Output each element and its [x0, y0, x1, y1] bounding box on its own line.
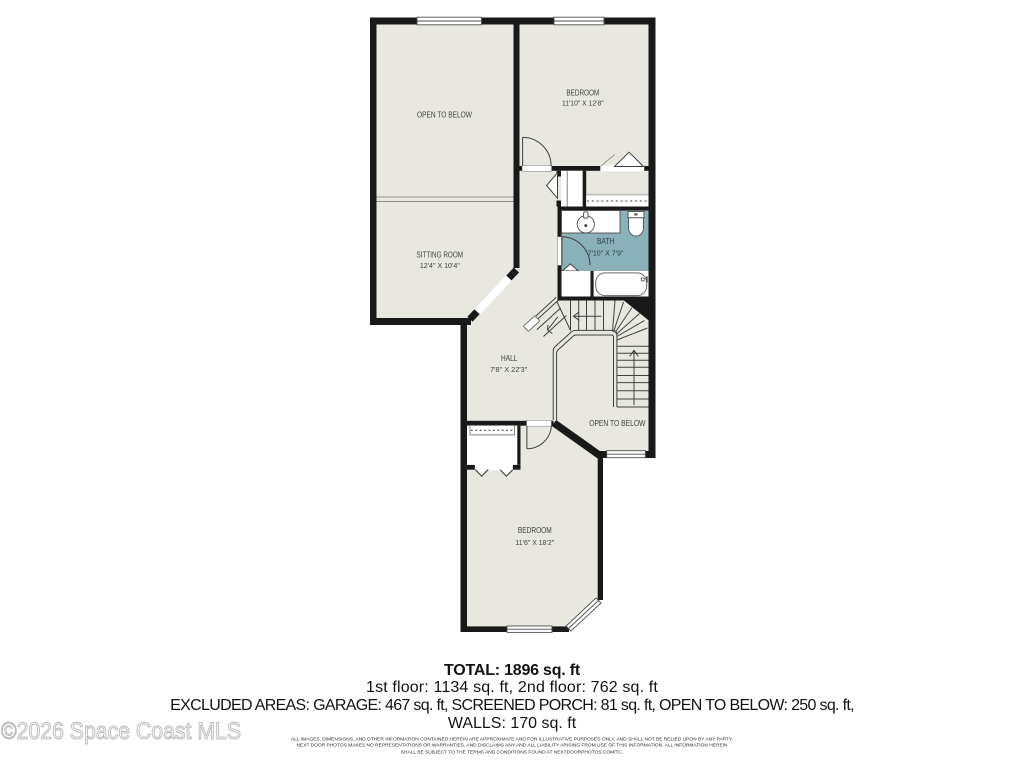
svg-text:OPEN TO BELOW: OPEN TO BELOW [589, 418, 646, 428]
svg-text:HALL: HALL [501, 353, 517, 363]
svg-text:SITTING ROOM: SITTING ROOM [417, 250, 463, 260]
svg-text:BEDROOM: BEDROOM [566, 87, 599, 97]
svg-text:11'6" X 18'2": 11'6" X 18'2" [515, 538, 554, 547]
svg-text:7'8" X 22'3": 7'8" X 22'3" [490, 365, 528, 374]
svg-text:BATH: BATH [597, 236, 614, 246]
svg-text:OPEN TO BELOW: OPEN TO BELOW [417, 110, 473, 120]
svg-text:7'10" X 7'9": 7'10" X 7'9" [588, 248, 624, 257]
svg-text:12'4" X 10'4": 12'4" X 10'4" [420, 261, 460, 270]
svg-text:11'10" X 12'8": 11'10" X 12'8" [562, 98, 604, 107]
svg-text:BEDROOM: BEDROOM [518, 525, 552, 535]
